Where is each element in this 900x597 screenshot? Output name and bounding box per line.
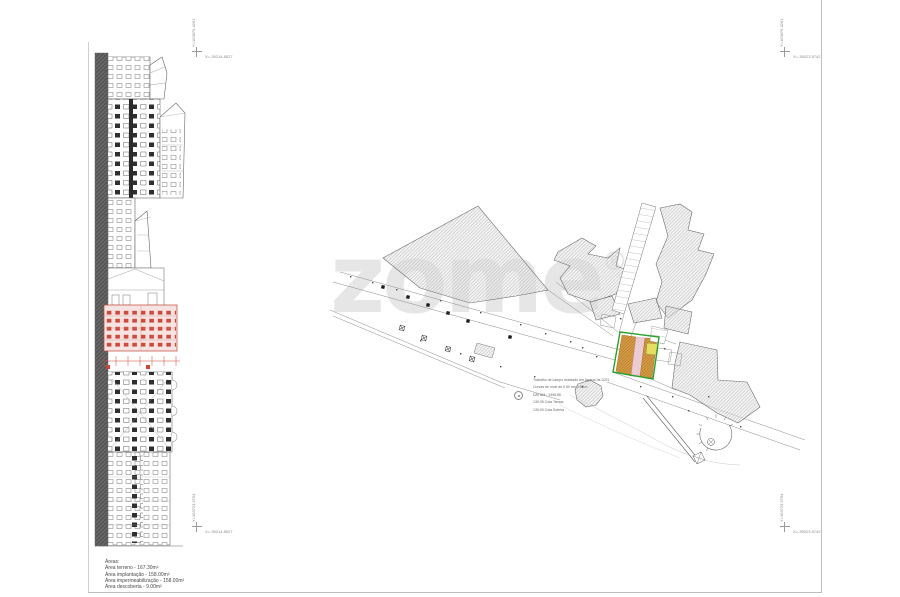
drawing-sheet: zome® xyxy=(0,0,900,597)
legend-line: DATUM - 1995.86 xyxy=(533,392,609,399)
crosswalk-hatch xyxy=(474,343,495,358)
building-elevation-g xyxy=(108,452,170,545)
x-coordinate-label: X=-39023.5742 xyxy=(793,54,820,59)
legend-line: 139.00 Cota Soleira xyxy=(533,407,609,414)
y-coordinate-label: Y=163876.4261 xyxy=(191,19,196,47)
x-coordinate-label: X=-39214.8527 xyxy=(205,529,232,534)
building-block-small-2 xyxy=(628,298,662,323)
legend-line: 139.05 Cota Tampa xyxy=(533,399,609,406)
cross-icon xyxy=(196,522,197,532)
x-coordinate-label: X=-39214.8527 xyxy=(205,54,232,59)
site-plan xyxy=(320,190,810,490)
building-elevation-c xyxy=(108,198,151,268)
street-lines xyxy=(330,272,805,450)
legend-line: Trabalho de campo realizado em Agosto de… xyxy=(533,377,609,384)
areas-block: Áreas: Área terreno - 167.30m² Área impl… xyxy=(105,559,184,590)
proposed-building-red-elevation xyxy=(104,305,177,351)
stepped-alley xyxy=(612,203,656,314)
areas-line: Área descoberta - 9.00m² xyxy=(105,584,184,590)
y-coordinate-label: Y=163723.5764 xyxy=(191,494,196,522)
dark-hatch-band xyxy=(95,53,108,546)
plot-highlight xyxy=(613,326,668,379)
building-block-small-3 xyxy=(664,306,692,334)
legend-line: Curvas de nível de 0.50 em 0.50 m xyxy=(533,384,609,391)
y-coordinate-label: Y=163876.4261 xyxy=(779,19,784,47)
building-elevation-f xyxy=(108,372,177,452)
cross-icon xyxy=(192,51,202,52)
building-block-northwest xyxy=(383,206,548,303)
sheet-border-right xyxy=(821,0,822,592)
red-dimension-marks xyxy=(104,356,180,369)
cross-icon xyxy=(192,526,202,527)
cross-icon xyxy=(784,522,785,532)
building-block-east xyxy=(672,342,760,423)
cross-icon xyxy=(784,47,785,57)
y-coordinate-label: Y=163723.5764 xyxy=(779,494,784,522)
cross-icon xyxy=(780,526,790,527)
tree-pit-markers xyxy=(399,325,475,362)
cross-icon xyxy=(780,51,790,52)
legend-block: Trabalho de campo realizado em Agosto de… xyxy=(533,377,609,414)
building-elevation-b xyxy=(108,99,185,198)
benchmark-icon xyxy=(514,391,523,400)
street-elevation-strip xyxy=(88,45,190,550)
building-elevation-a xyxy=(108,57,167,99)
sheet-border-bottom xyxy=(88,592,822,593)
building-block-northeast xyxy=(656,204,714,318)
x-coordinate-label: X=-39023.5742 xyxy=(793,529,820,534)
cross-icon xyxy=(196,47,197,57)
